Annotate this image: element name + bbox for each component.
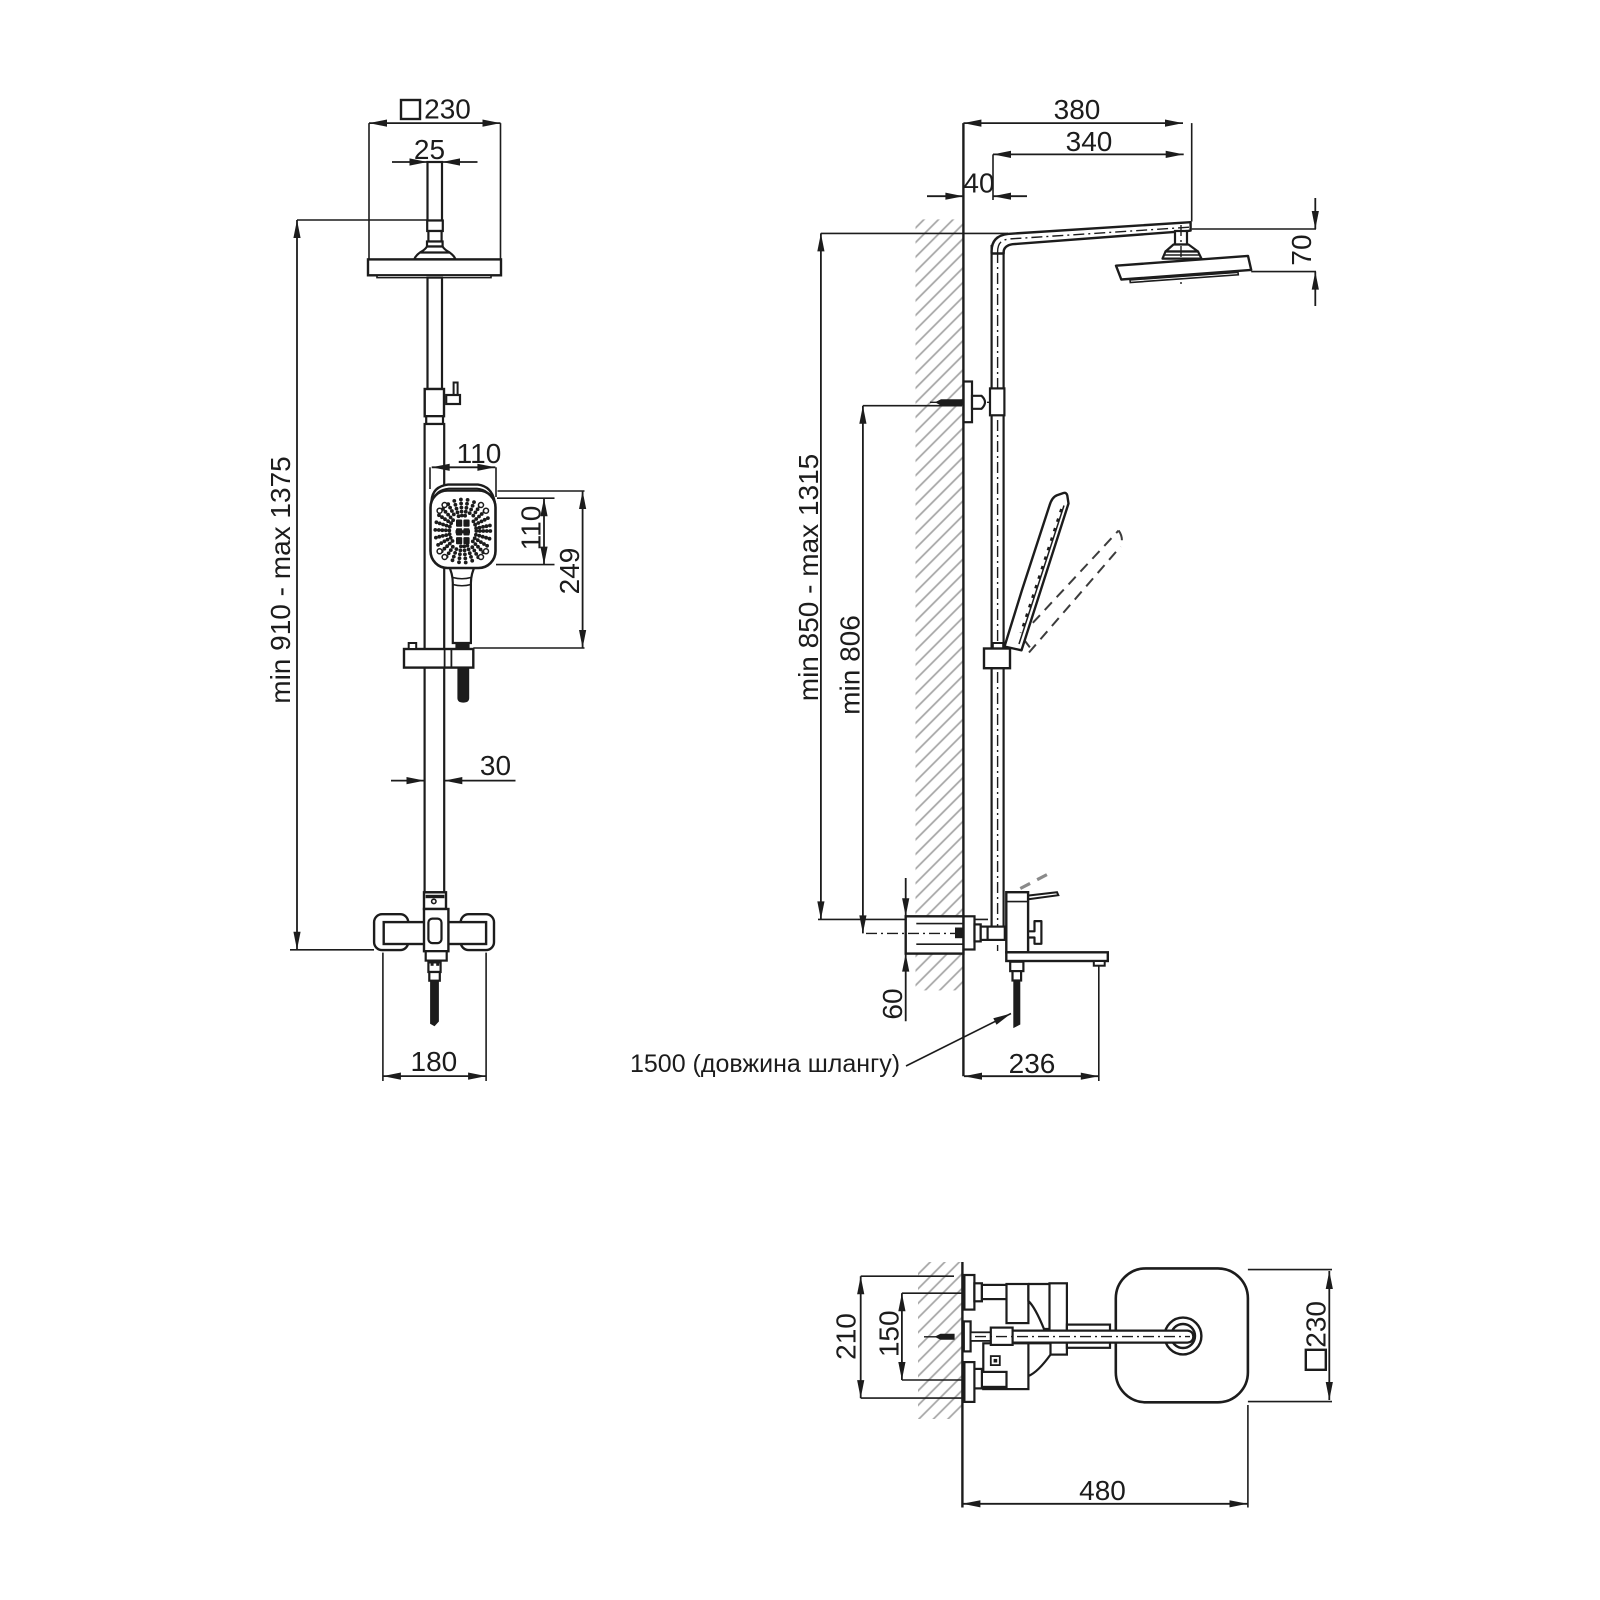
svg-text:236: 236: [1009, 1048, 1056, 1079]
svg-text:210: 210: [831, 1313, 862, 1360]
svg-text:min 806: min 806: [835, 615, 866, 715]
svg-text:110: 110: [516, 506, 547, 551]
svg-text:340: 340: [1066, 126, 1113, 157]
svg-text:30: 30: [480, 750, 511, 781]
svg-text:480: 480: [1079, 1475, 1126, 1506]
svg-text:249: 249: [554, 548, 585, 595]
svg-text:180: 180: [411, 1046, 458, 1077]
svg-text:60: 60: [877, 988, 908, 1019]
svg-text:1500 (довжина шлангу): 1500 (довжина шлангу): [630, 1050, 900, 1078]
svg-text:min 850 - max 1315: min 850 - max 1315: [793, 454, 824, 701]
svg-text:min 910 - max 1375: min 910 - max 1375: [265, 456, 296, 703]
svg-text:40: 40: [963, 168, 994, 199]
svg-text:230: 230: [424, 94, 471, 125]
svg-text:70: 70: [1286, 234, 1317, 265]
svg-text:230: 230: [1301, 1301, 1332, 1348]
svg-text:380: 380: [1054, 94, 1101, 125]
svg-text:150: 150: [874, 1310, 905, 1357]
